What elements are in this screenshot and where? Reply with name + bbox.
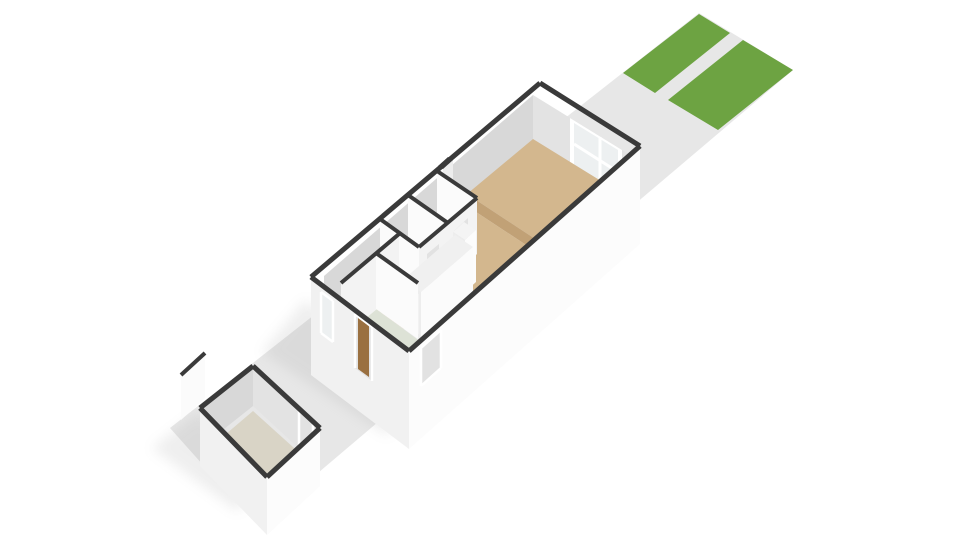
front-window bbox=[321, 292, 333, 342]
floorplan-canvas bbox=[0, 0, 960, 540]
front-door-panel bbox=[358, 318, 369, 377]
floorplan-render bbox=[0, 0, 960, 540]
